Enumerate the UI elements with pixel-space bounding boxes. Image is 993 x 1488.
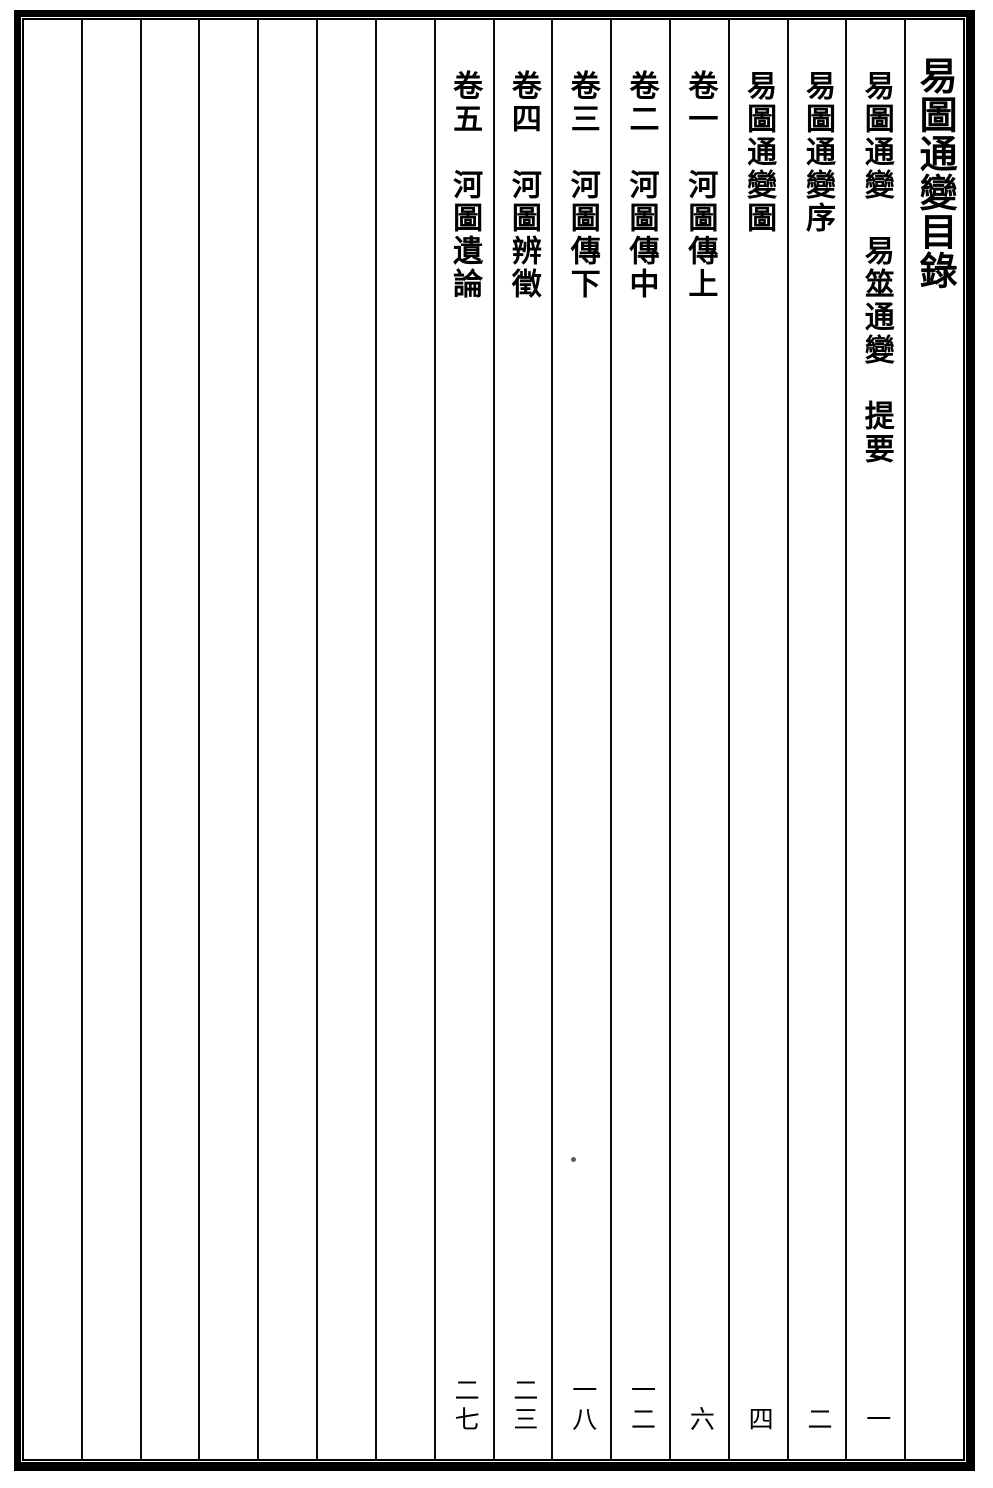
toc-entry-text: 卷五 河圖遺論 (442, 70, 486, 301)
inner-frame-border: 易圖通變目錄 易圖通變 易筮通變 提要 一 易圖通變序 二 易圖通變圖 四 卷一… (22, 18, 965, 1461)
toc-entry-column-1: 易圖通變 易筮通變 提要 一 (845, 20, 904, 1459)
toc-entry-text: 卷一 河圖傳上 (677, 70, 721, 301)
empty-column-4 (198, 20, 257, 1459)
toc-entry-text: 易圖通變序 (795, 70, 839, 235)
toc-entry-column-5: 卷二 河圖傳中 一二 (610, 20, 669, 1459)
empty-column-5 (140, 20, 199, 1459)
toc-columns: 易圖通變目錄 易圖通變 易筮通變 提要 一 易圖通變序 二 易圖通變圖 四 卷一… (24, 20, 963, 1459)
empty-column-1 (375, 20, 434, 1459)
toc-entry-page-number: 二三 (505, 1377, 541, 1435)
toc-entry-text: 卷四 河圖辨徵 (501, 70, 545, 301)
toc-entry-text: 易圖通變 易筮通變 提要 (854, 70, 898, 466)
toc-entry-page-number: 一八 (564, 1377, 600, 1435)
toc-entry-column-7: 卷四 河圖辨徵 二三 (493, 20, 552, 1459)
toc-entry-column-8: 卷五 河圖遺論 二七 (434, 20, 493, 1459)
toc-entry-column-2: 易圖通變序 二 (787, 20, 846, 1459)
toc-title-column: 易圖通變目錄 (904, 20, 963, 1459)
toc-entry-text: 卷三 河圖傳下 (560, 70, 604, 301)
page-title: 易圖通變目錄 (907, 56, 962, 290)
scan-speck (571, 1157, 576, 1162)
toc-entry-page-number: 二七 (446, 1377, 482, 1435)
empty-column-7 (24, 20, 81, 1459)
toc-entry-column-3: 易圖通變圖 四 (728, 20, 787, 1459)
empty-column-2 (316, 20, 375, 1459)
empty-column-6 (81, 20, 140, 1459)
toc-entry-text: 易圖通變圖 (736, 70, 780, 235)
toc-entry-page-number: 六 (681, 1406, 717, 1435)
scanned-book-page: { "page": { "kind": "scanned woodblock-p… (0, 0, 993, 1488)
toc-entry-page-number: 一 (858, 1406, 894, 1435)
toc-entry-column-4: 卷一 河圖傳上 六 (669, 20, 728, 1459)
empty-column-3 (257, 20, 316, 1459)
toc-entry-page-number: 一二 (623, 1377, 659, 1435)
toc-entry-text: 卷二 河圖傳中 (619, 70, 663, 301)
toc-entry-column-6: 卷三 河圖傳下 一八 (551, 20, 610, 1459)
toc-entry-page-number: 四 (740, 1406, 776, 1435)
outer-frame-border: 易圖通變目錄 易圖通變 易筮通變 提要 一 易圖通變序 二 易圖通變圖 四 卷一… (14, 10, 975, 1471)
toc-entry-page-number: 二 (799, 1406, 835, 1435)
